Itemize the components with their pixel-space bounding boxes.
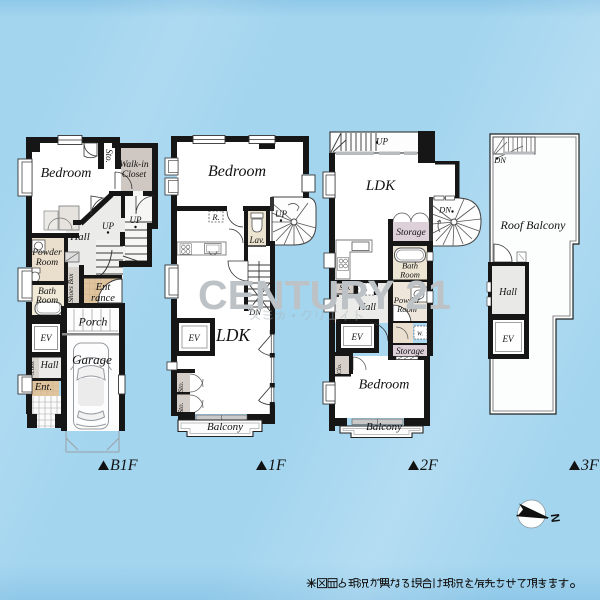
svg-text:Room: Room [35,258,58,268]
svg-text:UP: UP [275,209,287,219]
svg-text:Shoes Box: Shoes Box [67,273,75,303]
svg-text:Sto.: Sto. [104,149,114,163]
svg-text:1F: 1F [268,457,286,474]
svg-text:Roof Balcony: Roof Balcony [500,218,567,232]
svg-text:rance: rance [91,293,115,304]
svg-text:Storage: Storage [396,228,426,238]
svg-text:EV: EV [351,332,364,342]
svg-text:Ent.: Ent. [34,382,52,393]
svg-text:Porch: Porch [78,315,108,329]
svg-text:Hall: Hall [40,360,59,371]
svg-text:Lav.: Lav. [248,235,264,245]
svg-text:LDK: LDK [365,178,396,194]
svg-text:Balcony: Balcony [207,421,243,433]
svg-text:Bedroom: Bedroom [359,378,410,393]
svg-text:Room: Room [35,296,58,306]
svg-text:2F: 2F [420,457,438,474]
svg-text:Garage: Garage [72,352,112,367]
svg-text:Closet: Closet [122,170,147,180]
svg-text:Sto.: Sto. [177,381,185,392]
svg-text:EV: EV [188,333,201,343]
svg-text:R.: R. [211,212,219,222]
svg-text:CENTURY 21: CENTURY 21 [198,272,451,318]
svg-text:B1F: B1F [110,457,138,474]
svg-text:Balcony: Balcony [366,421,402,433]
svg-text:S.Box: S.Box [30,361,36,375]
svg-text:Powder: Powder [31,248,62,258]
svg-text:Hall: Hall [498,287,517,298]
svg-text:UP: UP [376,137,388,147]
svg-text:W.: W. [417,332,423,338]
svg-text:Ent: Ent [95,282,112,293]
svg-text:Clo.: Clo. [336,363,343,374]
svg-text:Sto.: Sto. [177,402,185,413]
svg-text:3F: 3F [580,457,599,474]
svg-text:DN: DN [438,205,452,215]
svg-text:UP: UP [102,221,114,231]
svg-text:Walk-in: Walk-in [119,160,148,170]
svg-text:Bedroom: Bedroom [41,166,92,181]
svg-text:DN: DN [493,155,507,165]
svg-text:EV: EV [502,334,515,344]
svg-text:N: N [548,513,563,523]
svg-text:LDK: LDK [215,325,251,345]
svg-text:UP: UP [130,215,142,225]
svg-text:EV: EV [40,333,53,343]
svg-text:Hall: Hall [69,231,90,243]
svg-text:Storage: Storage [396,346,424,356]
svg-text:Bedroom: Bedroom [208,163,266,180]
